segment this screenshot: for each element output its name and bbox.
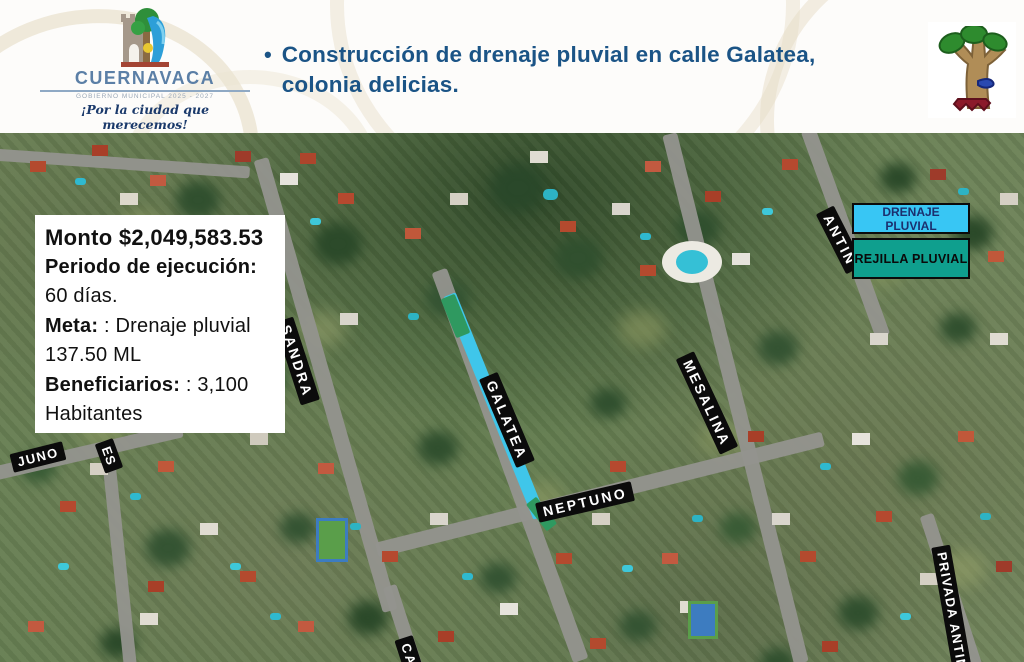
cuauhnahuac-tree-glyph [928,22,1016,118]
logo-slogan: ¡Por la ciudad que merecemos! [40,102,250,132]
info-beneficiarios: Beneficiarios: : 3,100 [45,371,275,401]
road-mesalina [662,133,808,662]
info-metros: 137.50 ML [45,341,275,371]
map-legend: DRENAJE PLUVIAL REJILLA PLUVIAL [852,203,970,279]
tree-glyph-icon [932,26,1012,114]
legend-rejilla-pluvial: REJILLA PLUVIAL [852,238,970,279]
map-pool-texture [0,133,11,140]
legend-drenaje-pluvial: DRENAJE PLUVIAL [852,203,970,234]
slide-header: CUERNAVACA GOBIERNO MUNICIPAL 2025 - 202… [0,0,1024,133]
rejilla-pluvial-segment-top [441,294,471,339]
page-title: Construcción de drenaje pluvial en calle… [282,40,864,100]
aerial-map: GALATEA NEPTUNO MESALINA SANDRA JUNO ES … [0,133,1024,662]
map-round-building [662,241,722,283]
info-meta: Meta: : Drenaje pluvial [45,312,275,342]
title-block: • Construcción de drenaje pluvial en cal… [264,40,864,100]
logo-subtitle: GOBIERNO MUNICIPAL 2025 - 2027 [40,93,250,100]
map-roof-texture [0,133,16,144]
cuernavaca-logo: CUERNAVACA GOBIERNO MUNICIPAL 2025 - 202… [40,6,250,132]
info-periodo: Periodo de ejecución: [45,253,275,283]
info-dias: 60 días. [45,282,275,312]
map-building-texture [0,133,18,145]
title-bullet: • [264,40,272,100]
street-label-neptuno: NEPTUNO [535,481,635,523]
info-habitantes: Habitantes [45,400,275,430]
info-monto: Monto $2,049,583.53 [45,223,275,253]
road-top-left [0,148,250,179]
castle-tree-waterfall-icon [107,6,183,68]
logo-wordmark: CUERNAVACA [40,68,250,92]
map-sport-court [688,601,718,639]
road-left-vertical [102,458,137,662]
project-info-box: Monto $2,049,583.53 Periodo de ejecución… [35,215,285,433]
map-tennis-court [316,518,348,562]
street-label-privada-antinea: PRIVADA ANTIN [931,545,973,662]
street-label-ca: CA [394,635,423,662]
